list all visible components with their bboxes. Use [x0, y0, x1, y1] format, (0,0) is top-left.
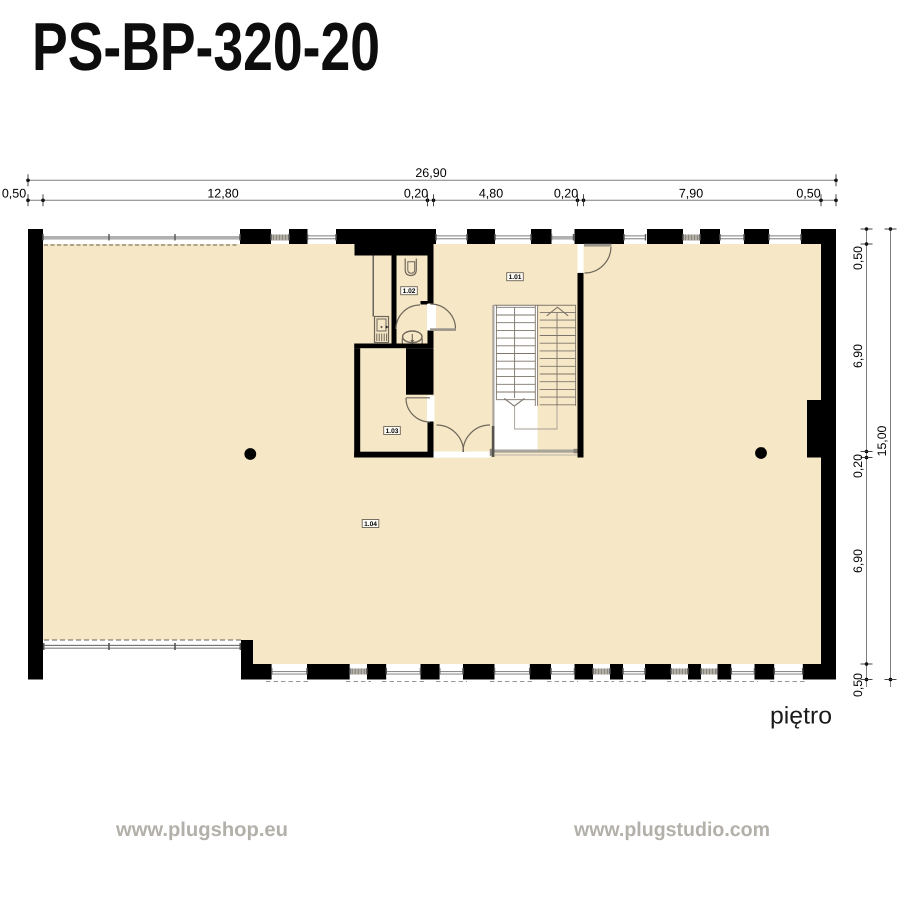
svg-text:7,90: 7,90 — [679, 186, 703, 200]
svg-text:4,80: 4,80 — [479, 186, 503, 200]
svg-text:0,20: 0,20 — [851, 454, 865, 478]
svg-text:www.plugshop.eu: www.plugshop.eu — [115, 819, 288, 841]
svg-text:www.plugstudio.com: www.plugstudio.com — [573, 819, 770, 841]
svg-text:0,50: 0,50 — [851, 246, 865, 270]
svg-text:0,50: 0,50 — [796, 186, 820, 200]
svg-text:6,90: 6,90 — [851, 549, 865, 573]
svg-text:0,50: 0,50 — [2, 186, 26, 200]
svg-text:1.04: 1.04 — [364, 521, 377, 528]
svg-text:0,50: 0,50 — [851, 673, 865, 697]
svg-text:0,20: 0,20 — [404, 186, 428, 200]
svg-text:26,90: 26,90 — [415, 166, 446, 180]
svg-text:15,00: 15,00 — [875, 425, 889, 456]
svg-text:12,80: 12,80 — [207, 186, 238, 200]
svg-text:1.02: 1.02 — [403, 288, 416, 295]
svg-text:6,90: 6,90 — [851, 344, 865, 368]
svg-text:PS-BP-320-20: PS-BP-320-20 — [32, 9, 380, 85]
svg-text:1.01: 1.01 — [509, 274, 522, 281]
svg-text:piętro: piętro — [770, 703, 832, 730]
svg-text:0,20: 0,20 — [554, 186, 578, 200]
svg-text:1.03: 1.03 — [386, 428, 399, 435]
